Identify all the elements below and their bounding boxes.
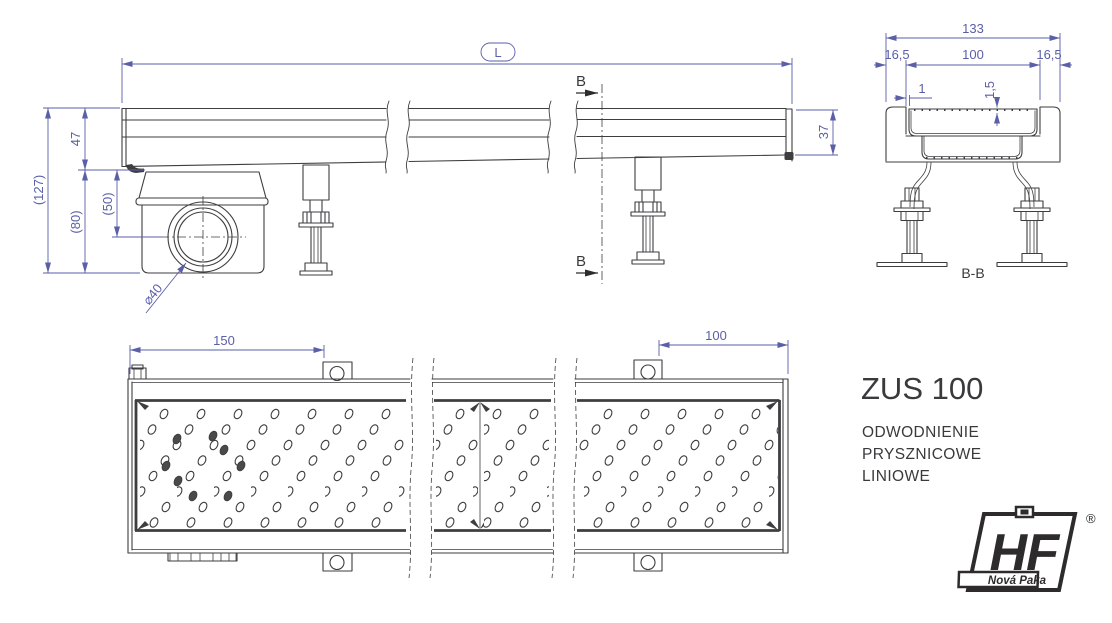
dim-overall-width: 133 [962,21,984,36]
siphon-trap [136,172,268,278]
dim-end-height: 37 [816,125,831,139]
title-block: ZUS 100 ODWODNIENIE PRYSZNICOWE LINIOWE [861,371,983,485]
dim-right-edge: 16,5 [1036,47,1061,62]
dim-channel-height: 47 [68,132,83,146]
technical-drawing: B B L 37 47 (80) (127) (50) [0,0,1112,623]
dim-outlet-diameter: ⌀40 [140,281,166,308]
dim-grate-thickness: 1,5 [982,81,997,99]
brand-logo: HF Nová Paka ® [959,507,1096,590]
logo-city: Nová Paka [988,575,1047,587]
description-line-3: LINIOWE [862,468,930,485]
product-name: ZUS 100 [861,371,983,406]
section-letter-bottom: B [576,253,586,270]
siphon-clips [168,553,237,561]
dim-trap-body-height: (80) [68,210,83,233]
side-view: B B L 37 47 (80) (127) (50) [31,43,838,313]
adjustable-foot-left [299,165,333,275]
channel-edge-curl [126,164,144,173]
dim-length: L [494,45,501,60]
foot-bolt-top-view [129,365,146,379]
grate-perforation [140,404,778,528]
section-view-bb: B-B 133 16,5 100 16,5 1 1,5 [874,21,1072,281]
section-dimensions: 133 16,5 100 16,5 1 1,5 [874,21,1072,126]
section-cut-line: B B [576,73,602,284]
top-view-dimensions: 150 100 [130,328,788,374]
dim-outlet-end-offset: 150 [213,333,235,348]
end-cap-foot [785,152,794,160]
section-letter-top: B [576,73,586,90]
description-line-2: PRYSZNICOWE [862,446,982,463]
adjustable-foot-right [631,157,665,264]
top-view: 150 100 [128,328,788,578]
dim-far-end-offset: 100 [705,328,727,343]
dim-outlet-axis-height: (50) [100,192,115,215]
section-foot-right [997,162,1067,267]
drawing-sheet: B B L 37 47 (80) (127) (50) [0,0,1112,623]
dim-grate-width: 100 [962,47,984,62]
dim-left-edge: 16,5 [884,47,909,62]
section-body [886,107,1060,162]
section-foot-left [877,162,947,267]
registered-trademark-icon: ® [1086,511,1096,526]
dim-total-height: (127) [31,175,46,205]
channel-body [122,101,794,173]
dim-grate-side-gap: 1 [918,81,925,96]
description-line-1: ODWODNIENIE [862,424,979,441]
section-view-label: B-B [961,265,984,281]
